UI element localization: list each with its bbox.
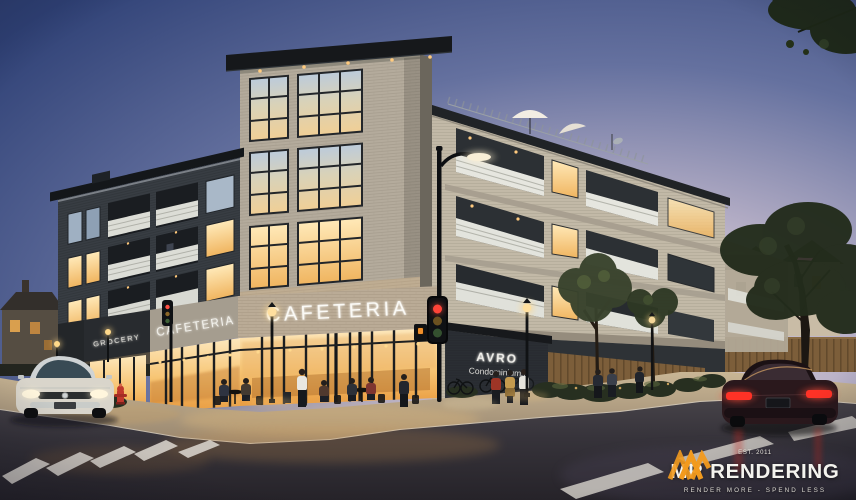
scene-canvas: CAFETERIA CAFETERIA GROCERY (0, 0, 856, 500)
rendering-scene: CAFETERIA CAFETERIA GROCERY (0, 0, 856, 500)
vignette (0, 0, 856, 500)
mr-monogram-icon (666, 450, 712, 480)
logo-tagline: RENDER MORE - SPEND LESS (666, 487, 844, 494)
mr-rendering-logo: EST. 2011 MR RENDERING RENDER MORE - SPE… (666, 450, 844, 494)
logo-est-text: EST. 2011 (738, 450, 772, 456)
